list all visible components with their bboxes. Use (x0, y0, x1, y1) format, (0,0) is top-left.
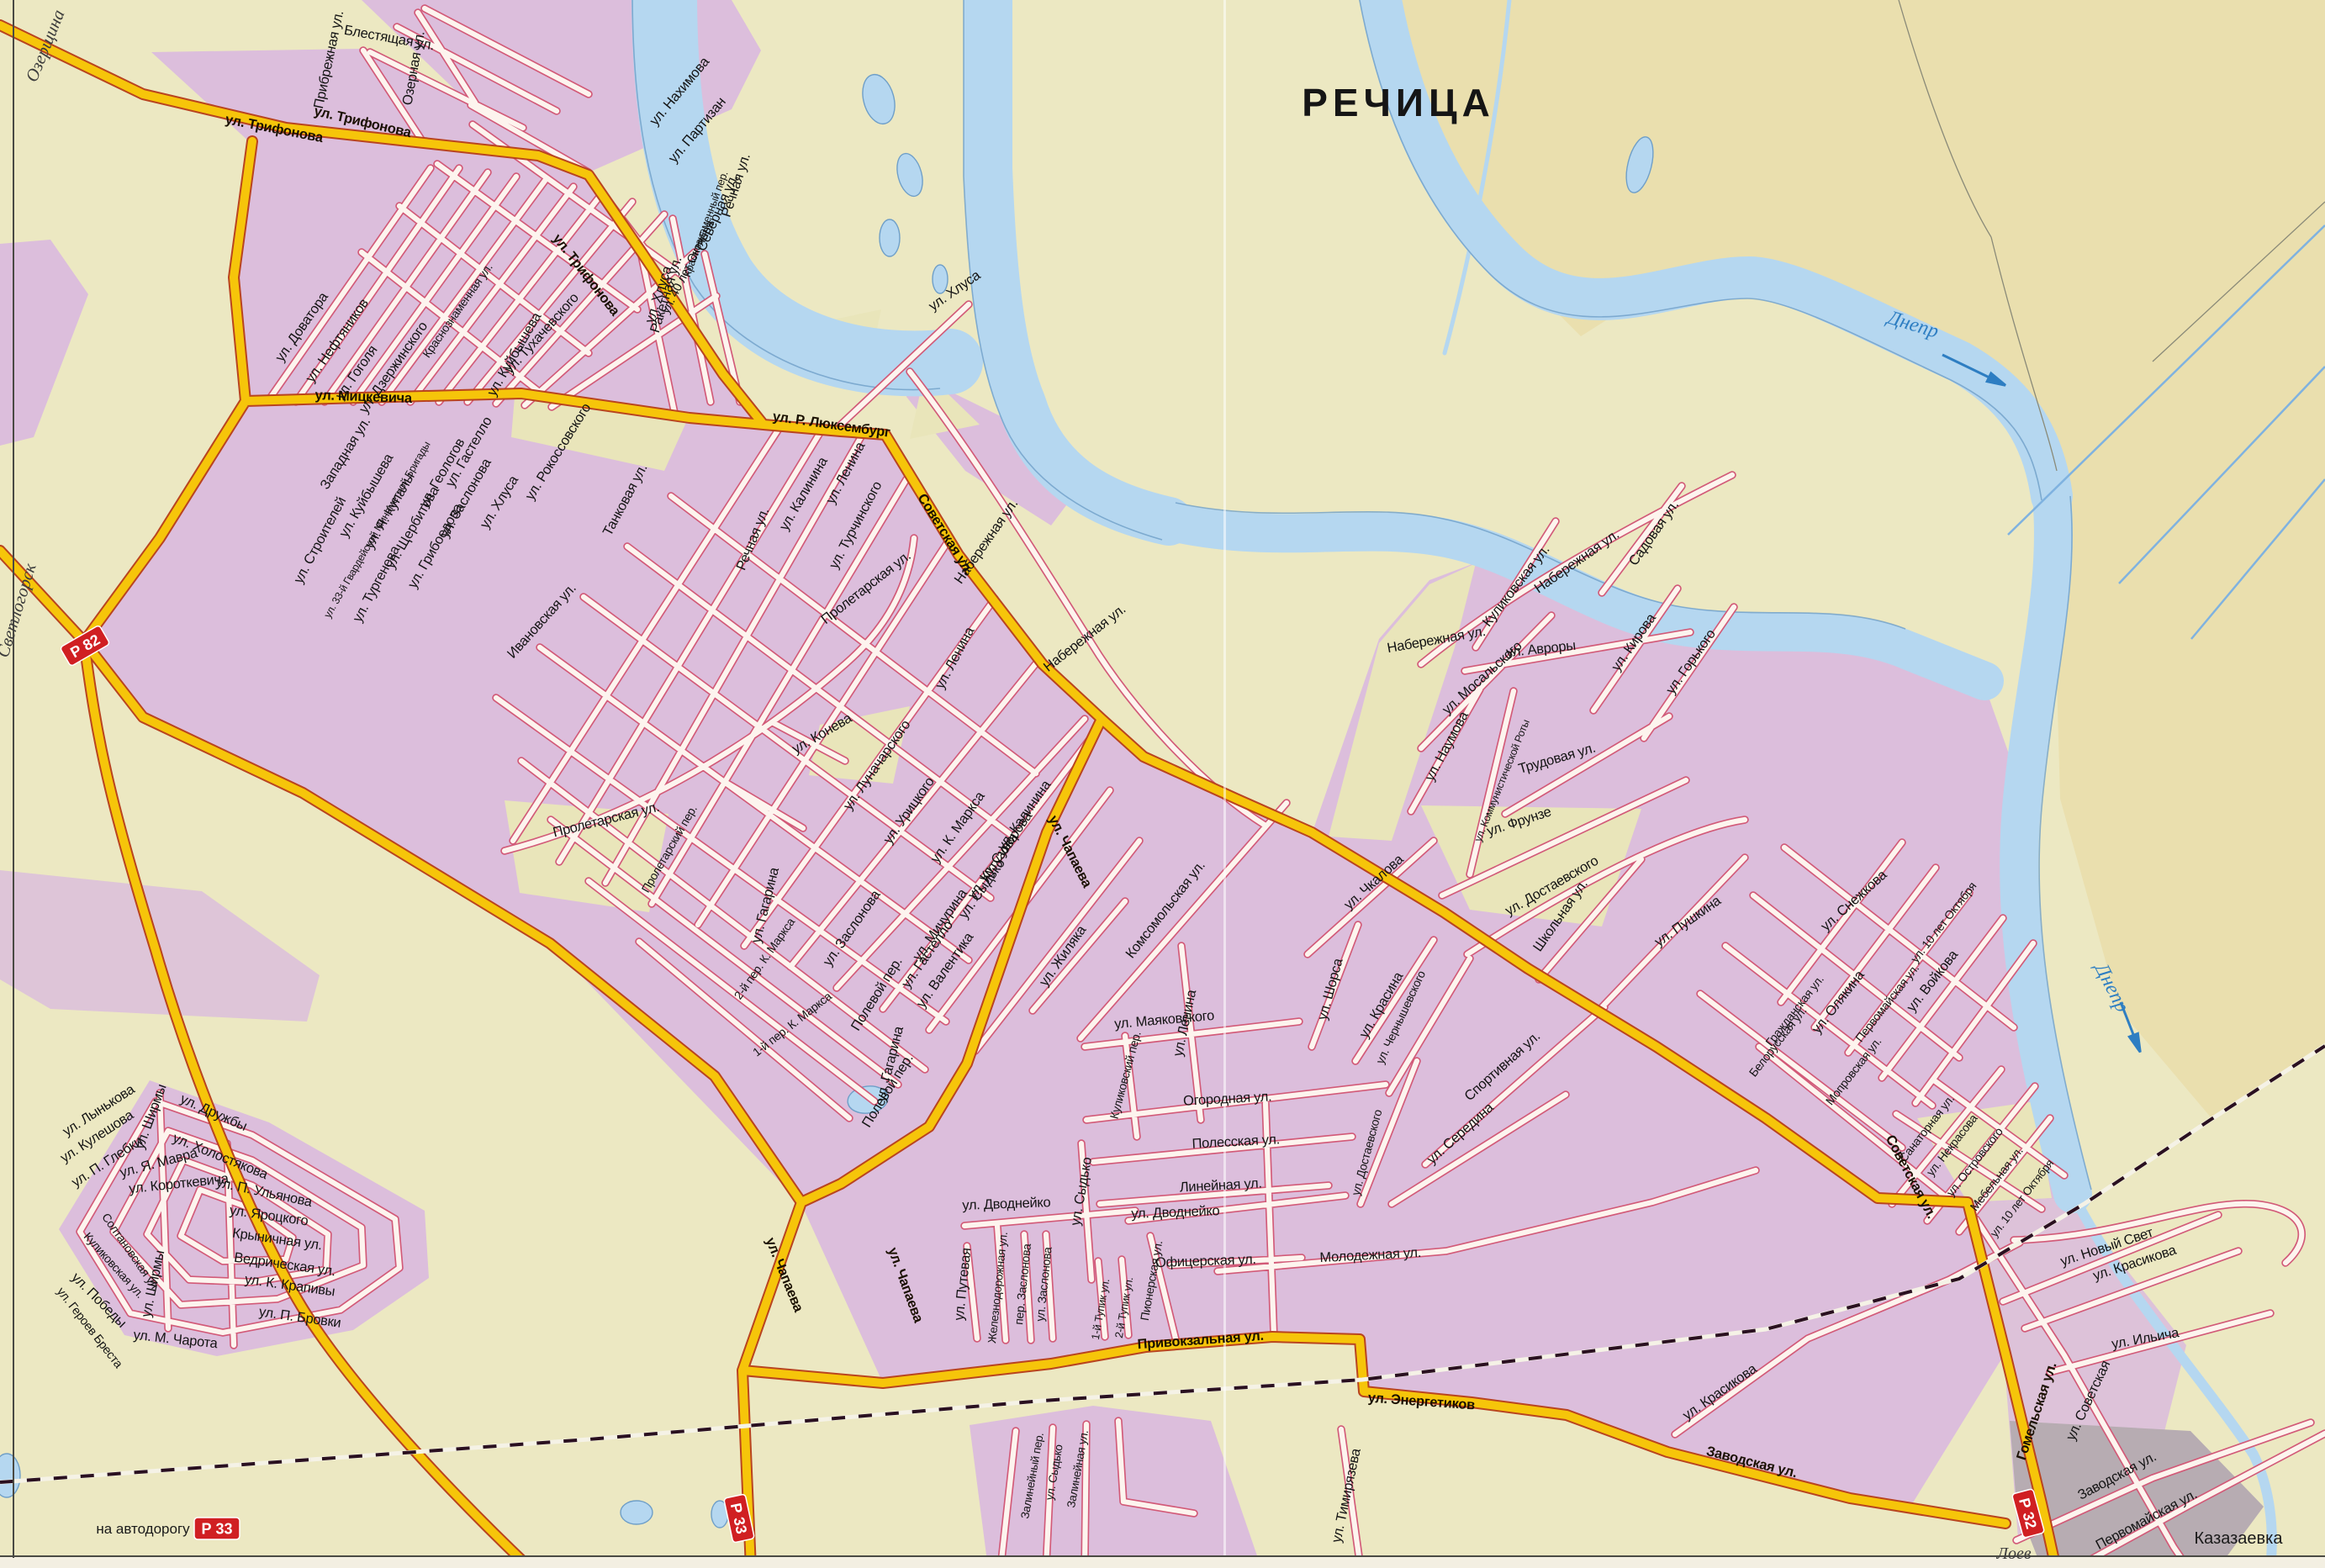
map-title: РЕЧИЦА (1302, 81, 1495, 124)
road-number-text: Р 33 (201, 1521, 232, 1538)
rechitsa-city-map: РЕЧИЦАул. Трифоноваул. Трифоноваул. Триф… (0, 0, 2325, 1568)
street-name-label: ул. Дводнейко (962, 1195, 1051, 1213)
place-label: Казазаевка (2195, 1529, 2284, 1548)
place-label: на автодорогу (96, 1521, 190, 1537)
place-label: Лоев (1995, 1544, 2031, 1563)
map-canvas: РЕЧИЦАул. Трифоноваул. Трифоноваул. Триф… (0, 0, 2325, 1568)
street-name-label: ул. Дводнейко (1131, 1203, 1220, 1222)
road-number-badge: Р 33 (194, 1518, 240, 1539)
